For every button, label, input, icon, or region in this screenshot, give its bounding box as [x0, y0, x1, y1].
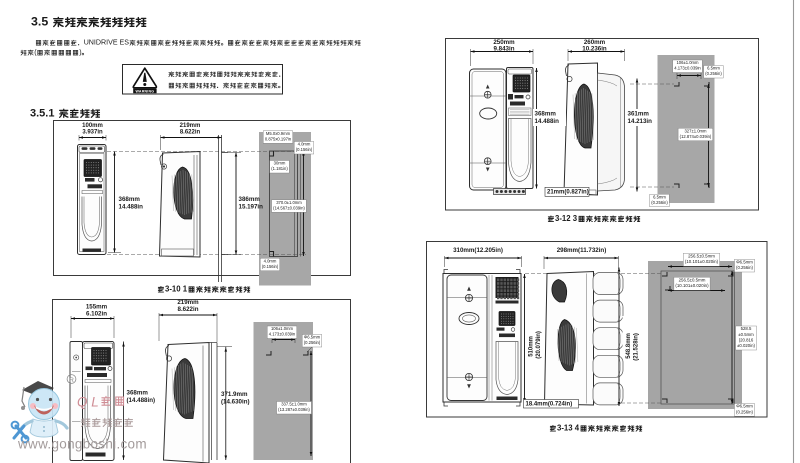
svg-text:368mm: 368mm	[119, 196, 141, 203]
svg-text:528.5: 528.5	[741, 326, 752, 331]
svg-text:219mm: 219mm	[177, 299, 199, 306]
svg-text:(14.488in): (14.488in)	[127, 397, 156, 404]
svg-text:(: (	[34, 49, 37, 57]
svg-text:337.5±1.0mm: 337.5±1.0mm	[281, 402, 307, 407]
svg-text:18.4mm(0.724in): 18.4mm(0.724in)	[526, 401, 573, 407]
svg-text:361mm: 361mm	[628, 111, 650, 118]
svg-text:(0.256in): (0.256in)	[736, 409, 754, 414]
svg-text:3.5: 3.5	[31, 14, 48, 28]
svg-text:371.9mm: 371.9mm	[221, 391, 248, 398]
svg-text:21mm(0.827in): 21mm(0.827in)	[547, 190, 589, 196]
svg-text:Φ6.5mm: Φ6.5mm	[304, 335, 321, 340]
svg-text:): )	[79, 49, 81, 57]
svg-text:298mm(11.732in): 298mm(11.732in)	[557, 247, 607, 254]
svg-text:256.5±0.5mm: 256.5±0.5mm	[688, 254, 715, 259]
svg-text:4.0mm: 4.0mm	[264, 259, 277, 264]
svg-text:3-12 3: 3-12 3	[555, 214, 578, 223]
svg-text:R: R	[69, 377, 74, 384]
svg-text:14.488in: 14.488in	[119, 204, 144, 211]
svg-text:386mm: 386mm	[239, 196, 261, 203]
svg-text:(1.181in): (1.181in)	[271, 166, 288, 171]
svg-text:(0.256in): (0.256in)	[651, 200, 668, 205]
svg-text:8.622in: 8.622in	[178, 306, 199, 313]
svg-text:106±1.0mm: 106±1.0mm	[271, 326, 294, 331]
svg-text:(20.079in): (20.079in)	[536, 331, 542, 359]
svg-text:(0.256in): (0.256in)	[736, 265, 754, 270]
svg-text:4.173±0.039in: 4.173±0.039in	[269, 332, 296, 337]
svg-text:368mm: 368mm	[535, 111, 557, 118]
svg-text:(0.256in): (0.256in)	[304, 340, 321, 345]
svg-text:Q L: Q L	[77, 395, 99, 410]
svg-text:6.102in: 6.102in	[86, 311, 107, 318]
svg-text:WARNING: WARNING	[136, 89, 155, 93]
svg-text:327±1.0mm: 327±1.0mm	[684, 129, 707, 134]
svg-text:15.197in: 15.197in	[239, 204, 264, 211]
svg-text:3.5.1: 3.5.1	[30, 107, 54, 119]
svg-text:0.875x0.197in: 0.875x0.197in	[265, 136, 292, 141]
svg-text:±0.020in): ±0.020in)	[737, 343, 755, 348]
svg-text:4.173±0.039in: 4.173±0.039in	[674, 66, 701, 71]
svg-text:368mm: 368mm	[127, 390, 149, 397]
svg-text:±0.5mm: ±0.5mm	[738, 332, 754, 337]
svg-text:100mm: 100mm	[82, 123, 103, 129]
svg-text:8.622in: 8.622in	[180, 129, 201, 135]
svg-text:(14.567±0.039in): (14.567±0.039in)	[273, 205, 305, 210]
svg-text:6.5mm: 6.5mm	[653, 195, 666, 200]
svg-text:Φ6.5mm: Φ6.5mm	[736, 259, 753, 264]
svg-text:4.0mm: 4.0mm	[298, 142, 311, 147]
svg-text:(20.816: (20.816	[739, 337, 754, 342]
svg-text:310mm(12.205in): 310mm(12.205in)	[453, 247, 503, 254]
svg-text:M5.0x0.9mm: M5.0x0.9mm	[266, 131, 291, 136]
svg-text:155mm: 155mm	[86, 304, 108, 311]
svg-text:3-10 1: 3-10 1	[165, 284, 188, 293]
svg-text:510mm: 510mm	[529, 336, 535, 357]
svg-text:(12.874±0.039in): (12.874±0.039in)	[680, 134, 712, 139]
svg-text:548.8mm: 548.8mm	[626, 333, 632, 359]
svg-text:(13.287±0.039in): (13.287±0.039in)	[278, 407, 310, 412]
svg-text:www.gongboshi.com: www.gongboshi.com	[17, 437, 147, 452]
svg-text:3-13 4: 3-13 4	[557, 423, 580, 432]
svg-text:219mm: 219mm	[180, 123, 201, 129]
svg-text:UNIDRIVE ES: UNIDRIVE ES	[84, 39, 130, 47]
svg-text:(0.256in): (0.256in)	[705, 71, 722, 76]
svg-text:(21.528in): (21.528in)	[634, 333, 640, 361]
svg-text:14.213in: 14.213in	[628, 118, 653, 125]
svg-text:106±1.0mm: 106±1.0mm	[676, 60, 699, 65]
svg-text:(14.630in): (14.630in)	[221, 399, 250, 406]
svg-text:Φ6.5mm: Φ6.5mm	[736, 404, 753, 409]
svg-text:(10.101±0.020in): (10.101±0.020in)	[675, 283, 709, 288]
svg-text:30mm: 30mm	[274, 161, 286, 166]
svg-text:(0.156in): (0.156in)	[262, 264, 279, 269]
svg-text:256.5±0.5mm: 256.5±0.5mm	[679, 278, 706, 283]
svg-text:(0.156in): (0.156in)	[296, 147, 313, 152]
svg-text:6.5mm: 6.5mm	[707, 66, 720, 71]
svg-text:(10.101±0.020in): (10.101±0.020in)	[685, 259, 719, 264]
svg-text:370.0±1.0mm: 370.0±1.0mm	[276, 200, 302, 205]
svg-text:14.488in: 14.488in	[535, 118, 560, 125]
svg-text:3.937in: 3.937in	[82, 129, 103, 135]
